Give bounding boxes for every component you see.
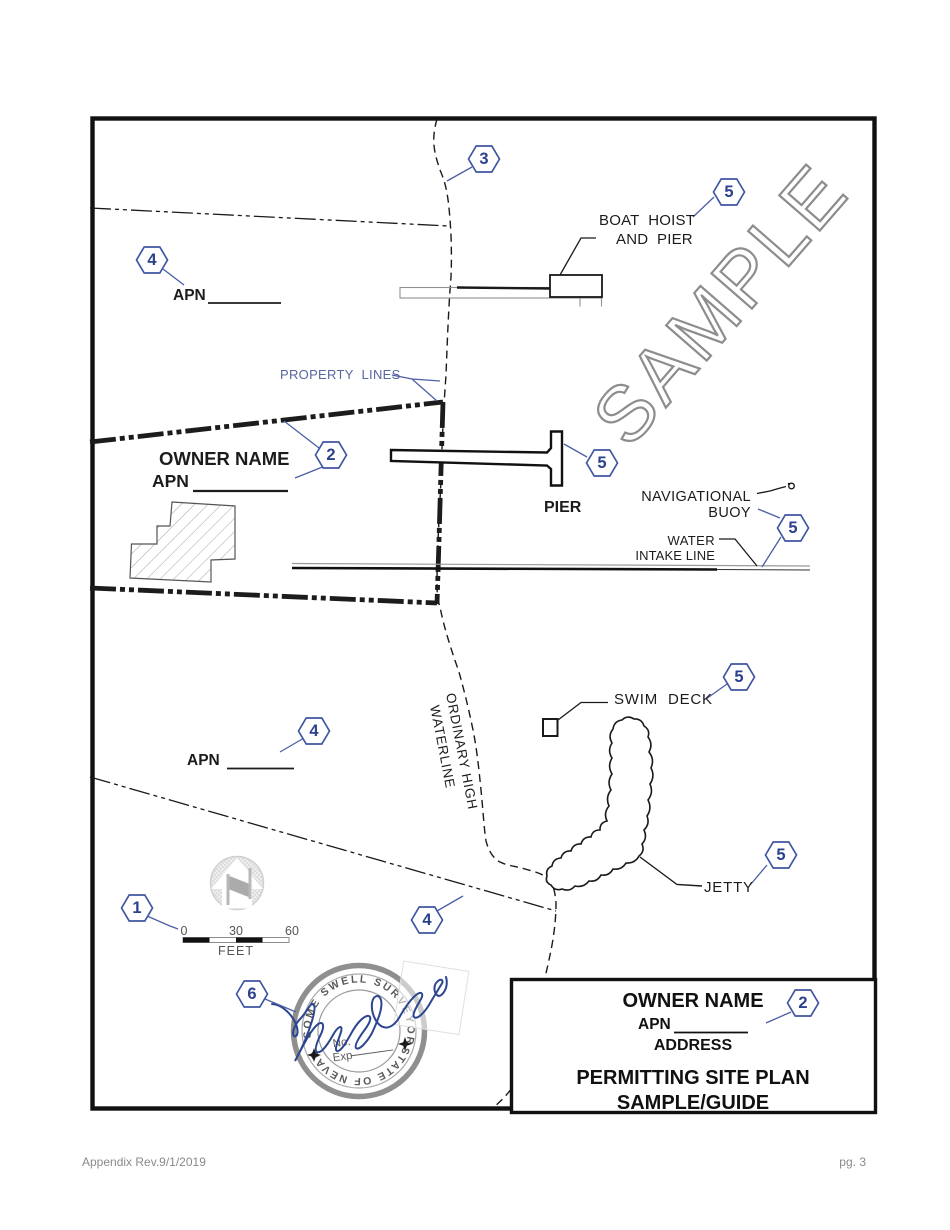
svg-text:NAVIGATIONAL: NAVIGATIONAL: [641, 489, 751, 505]
svg-text:SAMPLE/GUIDE: SAMPLE/GUIDE: [617, 1092, 769, 1114]
svg-text:APN: APN: [638, 1016, 671, 1033]
svg-text:ADDRESS: ADDRESS: [654, 1037, 733, 1054]
svg-text:APN: APN: [187, 752, 220, 769]
svg-text:Appendix Rev.9/1/2019: Appendix Rev.9/1/2019: [82, 1155, 206, 1169]
svg-text:5: 5: [788, 519, 797, 537]
svg-text:4: 4: [147, 251, 157, 269]
svg-text:PROPERTY LINES: PROPERTY LINES: [280, 367, 401, 382]
svg-text:2: 2: [326, 446, 335, 464]
svg-text:APN: APN: [173, 287, 206, 304]
svg-text:PERMITTING SITE PLAN: PERMITTING SITE PLAN: [576, 1067, 809, 1089]
svg-text:OWNER NAME: OWNER NAME: [159, 448, 290, 469]
svg-text:AND PIER: AND PIER: [616, 231, 693, 248]
svg-text:1: 1: [132, 899, 141, 917]
svg-text:WATER: WATER: [668, 533, 716, 548]
svg-text:pg. 3: pg. 3: [839, 1155, 866, 1169]
svg-text:BUOY: BUOY: [708, 505, 751, 521]
svg-text:5: 5: [734, 668, 743, 686]
svg-text:SWIM DECK: SWIM DECK: [614, 691, 713, 708]
svg-text:6: 6: [247, 985, 256, 1003]
svg-text:4: 4: [422, 911, 432, 929]
svg-text:APN: APN: [152, 471, 189, 491]
svg-text:2: 2: [798, 994, 807, 1012]
svg-text:5: 5: [597, 454, 606, 472]
svg-text:Exp: Exp: [332, 1050, 353, 1065]
svg-text:30: 30: [229, 924, 243, 938]
svg-text:BOAT HOIST: BOAT HOIST: [599, 212, 695, 229]
svg-text:5: 5: [776, 846, 785, 864]
svg-text:PIER: PIER: [544, 499, 582, 516]
svg-text:0: 0: [181, 924, 188, 938]
svg-text:JETTY: JETTY: [704, 879, 754, 896]
svg-text:OWNER NAME: OWNER NAME: [622, 990, 763, 1012]
svg-text:4: 4: [309, 722, 319, 740]
svg-text:5: 5: [724, 183, 733, 201]
svg-text:INTAKE LINE: INTAKE LINE: [635, 548, 715, 563]
svg-text:60: 60: [285, 924, 299, 938]
svg-text:FEET: FEET: [218, 944, 254, 958]
svg-text:3: 3: [479, 150, 488, 168]
